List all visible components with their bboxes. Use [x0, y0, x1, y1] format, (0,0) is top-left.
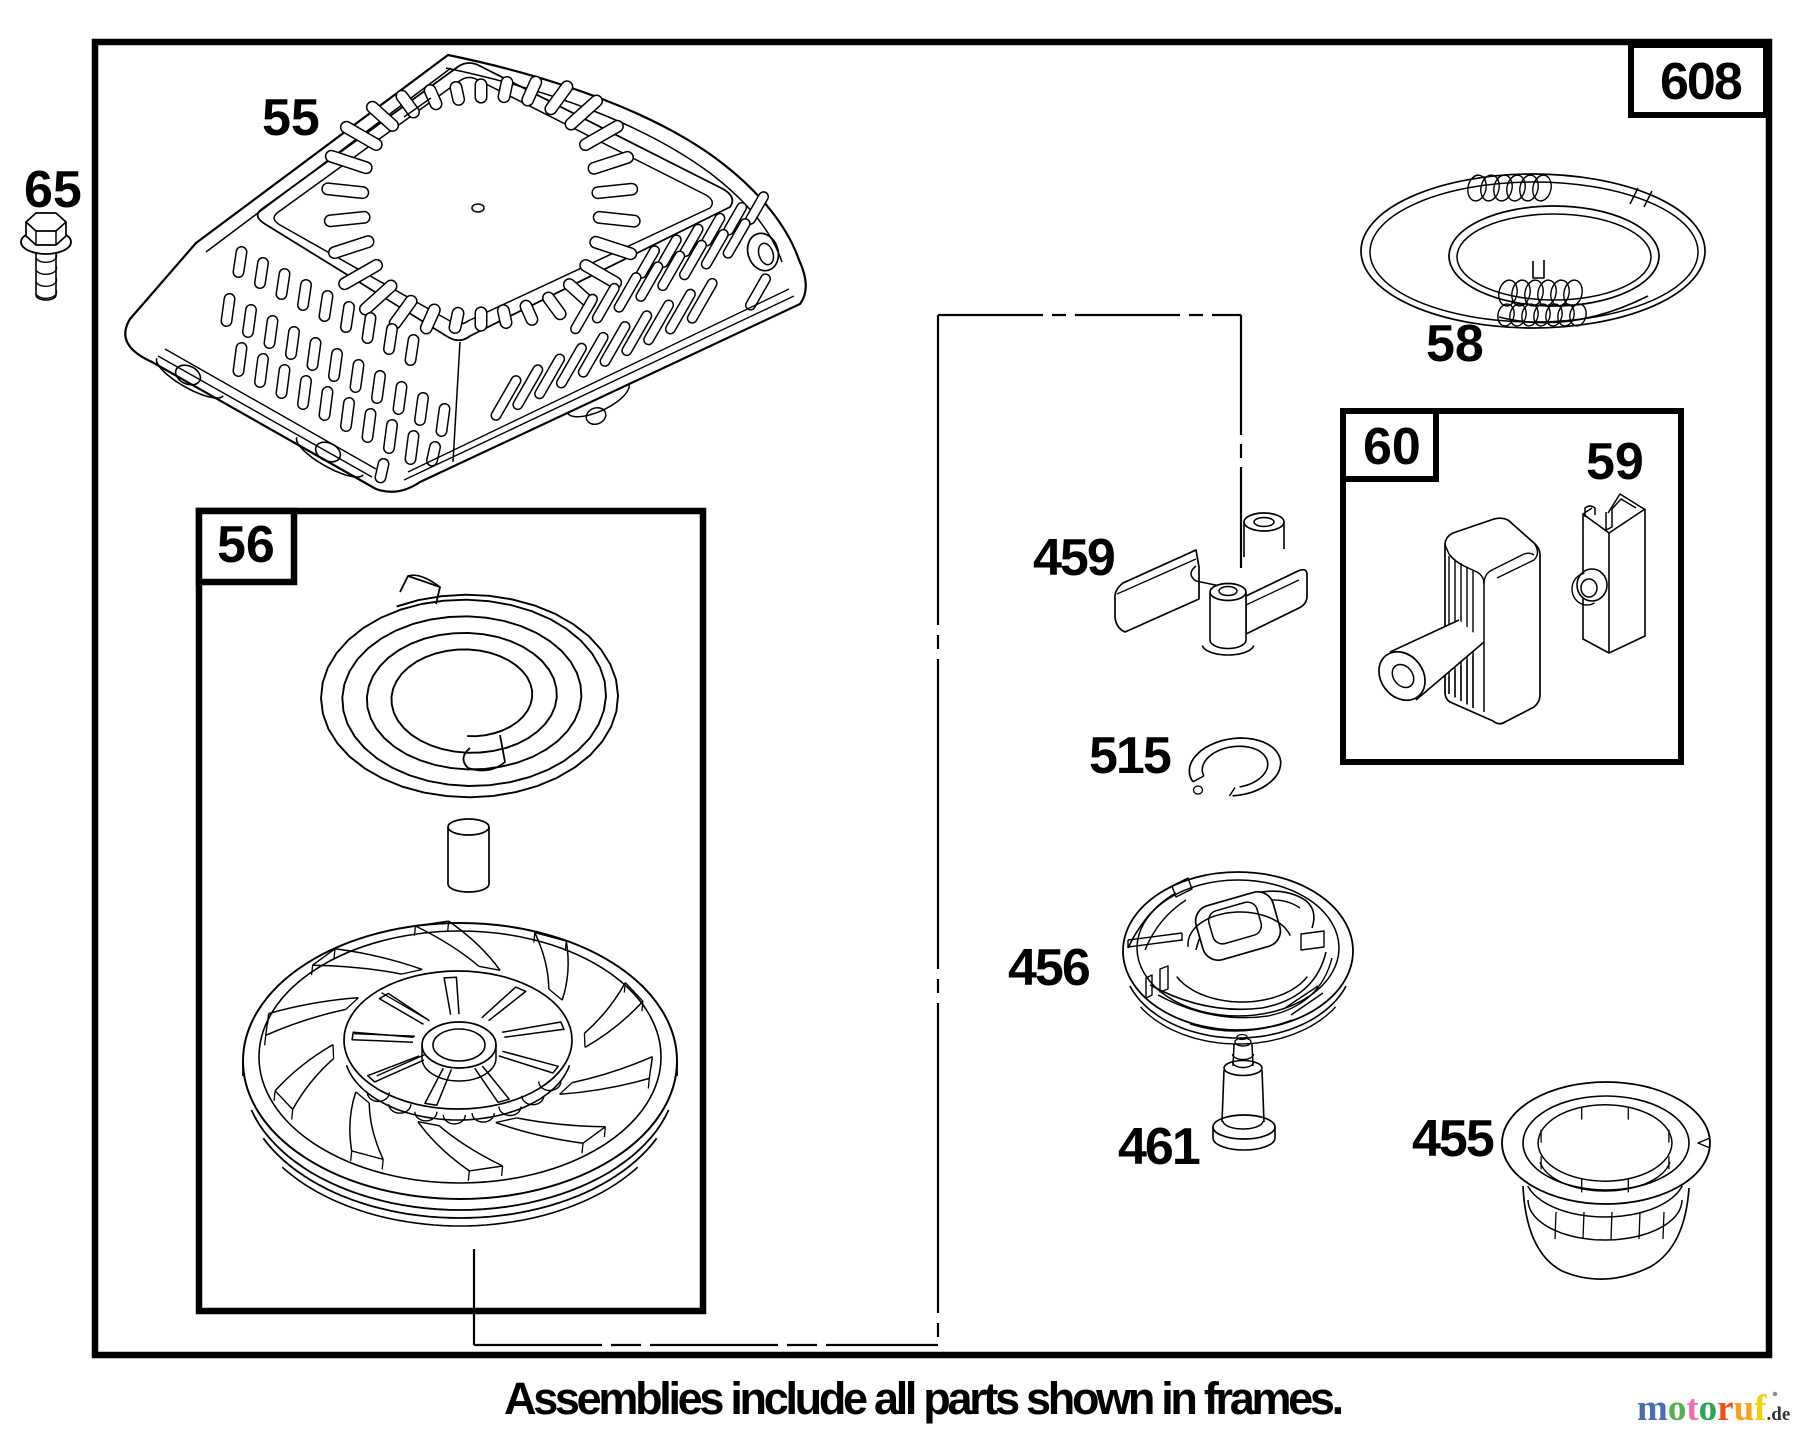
svg-text:459: 459 [1033, 529, 1114, 587]
svg-text:455: 455 [1412, 1110, 1494, 1168]
svg-text:608: 608 [1660, 53, 1742, 111]
svg-text:461: 461 [1118, 1118, 1200, 1176]
svg-text:58: 58 [1426, 315, 1484, 373]
svg-text:515: 515 [1089, 727, 1171, 785]
svg-text:55: 55 [262, 89, 320, 147]
svg-text:Assemblies include all parts s: Assemblies include all parts shown in fr… [504, 1373, 1342, 1424]
svg-text:65: 65 [24, 161, 82, 219]
svg-text:456: 456 [1008, 939, 1090, 997]
svg-text:60: 60 [1363, 418, 1421, 476]
svg-text:59: 59 [1586, 433, 1644, 491]
svg-text:56: 56 [217, 516, 275, 574]
